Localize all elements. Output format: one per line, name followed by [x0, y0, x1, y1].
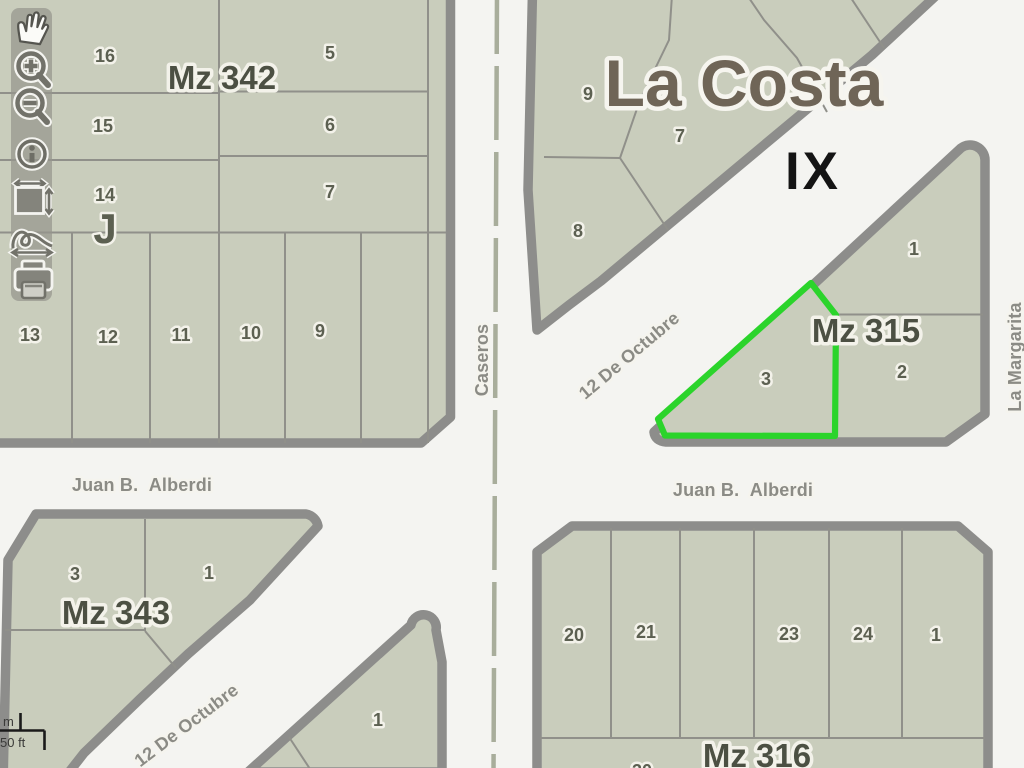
svg-text:3: 3 — [70, 564, 80, 584]
svg-text:1: 1 — [373, 710, 383, 730]
svg-text:Mz 316: Mz 316 — [703, 737, 811, 768]
svg-text:24: 24 — [853, 624, 873, 644]
svg-text:Mz 315: Mz 315 — [812, 312, 920, 349]
svg-text:23: 23 — [779, 624, 799, 644]
svg-text:21: 21 — [636, 622, 656, 642]
svg-text:J: J — [93, 205, 116, 252]
svg-text:14: 14 — [95, 185, 115, 205]
svg-text:15: 15 — [93, 116, 113, 136]
svg-text:30: 30 — [632, 761, 652, 768]
svg-text:13: 13 — [20, 325, 40, 345]
svg-text:1: 1 — [909, 239, 919, 259]
svg-text:6: 6 — [325, 115, 335, 135]
svg-text:IX: IX — [785, 142, 841, 201]
svg-text:10: 10 — [241, 323, 261, 343]
svg-text:La Margarita: La Margarita — [1005, 301, 1024, 411]
svg-text:11: 11 — [171, 325, 190, 345]
svg-text:3: 3 — [761, 369, 771, 389]
svg-text:Mz 343: Mz 343 — [62, 594, 170, 631]
svg-text:20: 20 — [564, 625, 584, 645]
svg-text:9: 9 — [583, 84, 593, 104]
svg-text:1: 1 — [931, 625, 941, 645]
svg-text:5: 5 — [325, 43, 335, 63]
svg-text:Juan B. Alberdi: Juan B. Alberdi — [72, 475, 212, 495]
svg-text:7: 7 — [325, 182, 335, 202]
svg-text:1: 1 — [204, 563, 214, 583]
svg-text:2: 2 — [897, 362, 907, 382]
svg-text:Mz 342: Mz 342 — [168, 59, 276, 96]
svg-text:Caseros: Caseros — [472, 324, 492, 396]
svg-text:50 ft: 50 ft — [0, 735, 26, 750]
svg-text:8: 8 — [573, 221, 583, 241]
svg-text:16: 16 — [95, 46, 115, 66]
svg-text:9: 9 — [315, 321, 325, 341]
svg-text:Juan B. Alberdi: Juan B. Alberdi — [673, 480, 813, 500]
svg-text:m: m — [3, 714, 14, 729]
svg-text:7: 7 — [675, 126, 685, 146]
svg-text:La Costa: La Costa — [605, 46, 885, 120]
svg-text:12: 12 — [98, 327, 118, 347]
